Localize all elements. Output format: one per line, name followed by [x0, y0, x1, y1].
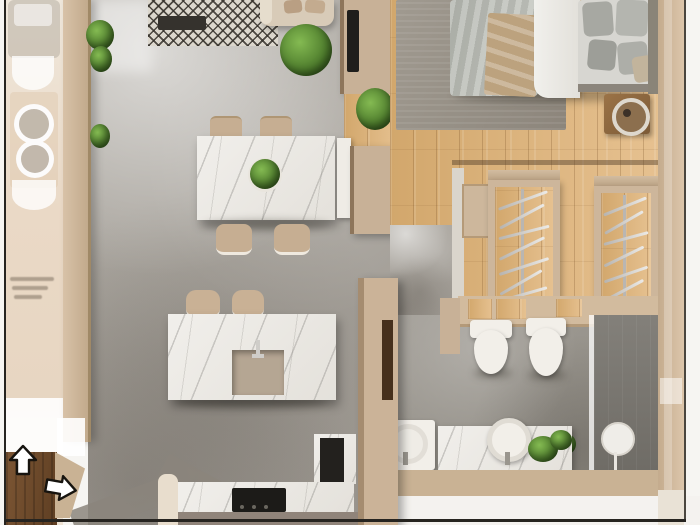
washer-dial-icon — [14, 104, 54, 144]
frame-bottom — [4, 519, 686, 522]
bed-pillow — [582, 1, 614, 37]
bed-pillow — [615, 0, 649, 37]
wall-plant-small — [90, 124, 110, 148]
mirror-stand — [614, 452, 617, 470]
wardrobe-right — [594, 186, 658, 312]
cooktop-knob — [252, 505, 256, 509]
counter-cubby — [556, 299, 582, 317]
watermark-line — [14, 295, 42, 299]
sink-faucet — [505, 452, 510, 465]
island-faucet-spout — [252, 354, 264, 358]
hanger — [603, 231, 648, 246]
table-lamp — [612, 98, 650, 136]
coffee-table-tray — [158, 16, 206, 30]
bed-pillow — [587, 39, 618, 71]
bed-frame-edge — [578, 84, 656, 92]
cooktop-knob — [264, 505, 268, 509]
bathroom-corner-wall — [440, 298, 460, 354]
counter-cubby — [496, 299, 526, 319]
hall-plant — [356, 88, 394, 130]
bathroom-bottom-wall — [398, 470, 658, 496]
bathroom-door-opening — [382, 320, 393, 400]
frame-right — [684, 0, 686, 521]
shower-mirror — [601, 422, 635, 456]
frame-left — [4, 0, 6, 525]
watermark-line — [10, 277, 54, 281]
dining-chair — [216, 224, 252, 255]
right-wall-highlight — [664, 0, 672, 525]
watermark-line — [12, 286, 48, 290]
centerpiece-plant — [250, 159, 280, 189]
wall-plant — [90, 46, 112, 72]
closet-divider-shadow — [452, 160, 658, 165]
hanger — [499, 257, 549, 276]
sofa-pillow — [283, 0, 302, 14]
sink-faucet — [403, 452, 408, 465]
tv — [347, 10, 359, 72]
bed-throw-blanket — [484, 13, 540, 98]
left-wall — [63, 0, 91, 442]
right-wall-notch — [660, 378, 682, 404]
bed-sheet-fold — [534, 0, 580, 98]
dryer-dial-icon — [16, 140, 54, 178]
living-plant-large — [280, 24, 332, 76]
counter-cubby — [468, 299, 492, 319]
cooktop-knob — [240, 505, 244, 509]
console-shelf — [337, 138, 351, 218]
up-arrow-icon — [8, 444, 38, 476]
faded-sink-arc — [12, 180, 56, 210]
bathroom-divider-wall — [358, 278, 398, 525]
counter-end-post — [158, 474, 178, 525]
built-in-oven — [320, 438, 344, 482]
faded-basin-arc — [12, 56, 54, 90]
lamp-center — [623, 109, 631, 117]
right-arrow-icon — [42, 471, 80, 504]
vanity-plant — [550, 430, 572, 450]
sofa-armrest — [260, 0, 272, 24]
sofa-pillow — [304, 0, 325, 14]
faded-cushion — [14, 4, 52, 26]
dining-chair — [274, 224, 310, 255]
wall-end-cap — [57, 418, 85, 456]
wardrobe-left — [488, 180, 560, 310]
headboard — [648, 0, 658, 94]
floorplan-canvas — [0, 0, 700, 525]
